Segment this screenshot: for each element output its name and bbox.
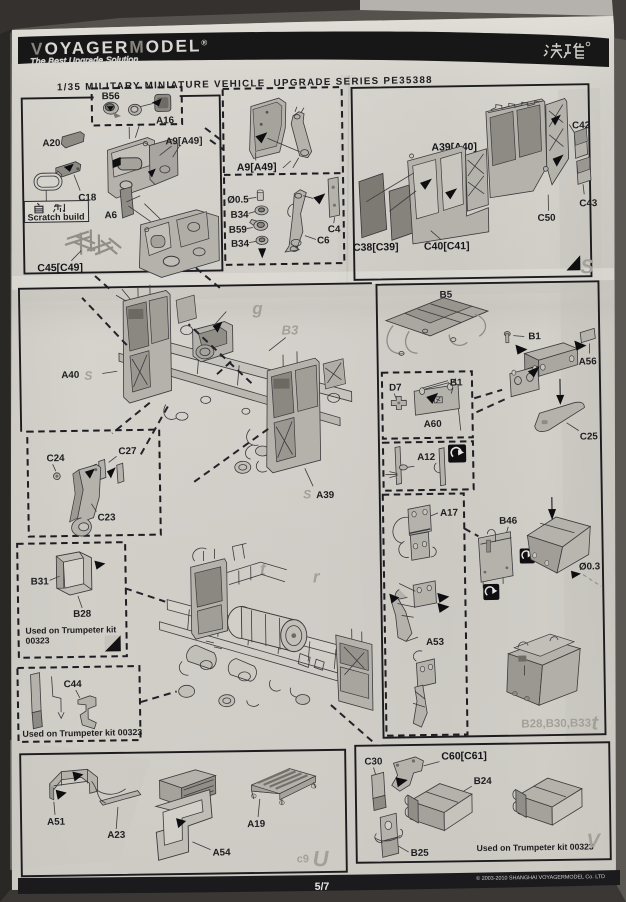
svg-text:A17: A17	[440, 508, 459, 519]
svg-text:A20: A20	[42, 138, 61, 149]
svg-text:V: V	[586, 830, 601, 852]
svg-text:Ø0.3: Ø0.3	[579, 561, 601, 572]
svg-text:B56: B56	[102, 91, 121, 102]
svg-text:C24: C24	[47, 453, 66, 464]
svg-text:C27: C27	[118, 446, 137, 457]
svg-text:C4: C4	[328, 224, 341, 235]
svg-text:B3: B3	[281, 322, 299, 337]
svg-text:Ø0.5: Ø0.5	[227, 195, 249, 206]
svg-text:B1: B1	[450, 377, 463, 388]
svg-text:C45[C49]: C45[C49]	[37, 262, 83, 275]
svg-text:B34: B34	[231, 210, 250, 221]
svg-text:S: S	[303, 487, 311, 501]
svg-text:A56: A56	[579, 356, 598, 367]
svg-text:C42: C42	[572, 120, 591, 131]
svg-text:c9: c9	[297, 853, 309, 865]
svg-text:A19: A19	[247, 819, 266, 830]
svg-text:A40: A40	[61, 370, 80, 381]
svg-text:A16: A16	[156, 115, 175, 126]
svg-text:B24: B24	[474, 776, 493, 787]
svg-text:C6: C6	[317, 235, 330, 246]
svg-text:B28: B28	[73, 609, 92, 620]
svg-text:C38[C39]: C38[C39]	[353, 241, 399, 254]
svg-text:B59: B59	[229, 225, 248, 236]
svg-text:Used on Trumpeter kit: Used on Trumpeter kit	[25, 624, 116, 635]
svg-text:A9[A49]: A9[A49]	[237, 161, 277, 174]
svg-text:B34: B34	[231, 239, 250, 250]
svg-text:Scratch build: Scratch build	[27, 212, 84, 223]
svg-text:g: g	[251, 299, 263, 318]
svg-text:Used on Trumpeter kit 00323: Used on Trumpeter kit 00323	[477, 841, 594, 853]
svg-text:A51: A51	[47, 817, 66, 828]
svg-text:S: S	[84, 369, 92, 383]
svg-text:B28,B30,B33: B28,B30,B33	[521, 717, 591, 730]
svg-text:B46: B46	[499, 516, 518, 527]
svg-text:A12: A12	[417, 452, 436, 463]
svg-text:A39: A39	[316, 490, 335, 501]
svg-text:C50: C50	[537, 213, 556, 224]
svg-text:C44: C44	[64, 679, 83, 690]
svg-text:A54: A54	[212, 847, 231, 858]
svg-text:S: S	[580, 256, 594, 278]
svg-text:A23: A23	[107, 830, 126, 841]
svg-text:B1: B1	[528, 331, 541, 342]
svg-text:5/7: 5/7	[315, 881, 330, 893]
svg-text:C40[C41]: C40[C41]	[424, 240, 470, 253]
svg-text:U: U	[312, 846, 329, 871]
svg-text:C25: C25	[580, 431, 599, 442]
svg-text:A9[A49]: A9[A49]	[165, 136, 202, 148]
svg-text:Used on Trumpeter kit 00323: Used on Trumpeter kit 00323	[22, 727, 142, 739]
svg-text:C43: C43	[579, 198, 598, 209]
svg-text:A60: A60	[424, 419, 443, 430]
svg-text:B31: B31	[31, 576, 50, 587]
svg-text:A6: A6	[104, 210, 117, 221]
svg-text:The Best Upgrade Solution: The Best Upgrade Solution	[30, 54, 138, 66]
svg-text:B25: B25	[411, 848, 430, 859]
svg-text:C23: C23	[97, 512, 116, 523]
svg-text:C60[C61]: C60[C61]	[441, 750, 487, 763]
svg-text:C30: C30	[364, 756, 383, 767]
svg-text:D7: D7	[389, 382, 402, 393]
svg-text:00323: 00323	[26, 635, 50, 645]
svg-text:A53: A53	[426, 637, 445, 648]
